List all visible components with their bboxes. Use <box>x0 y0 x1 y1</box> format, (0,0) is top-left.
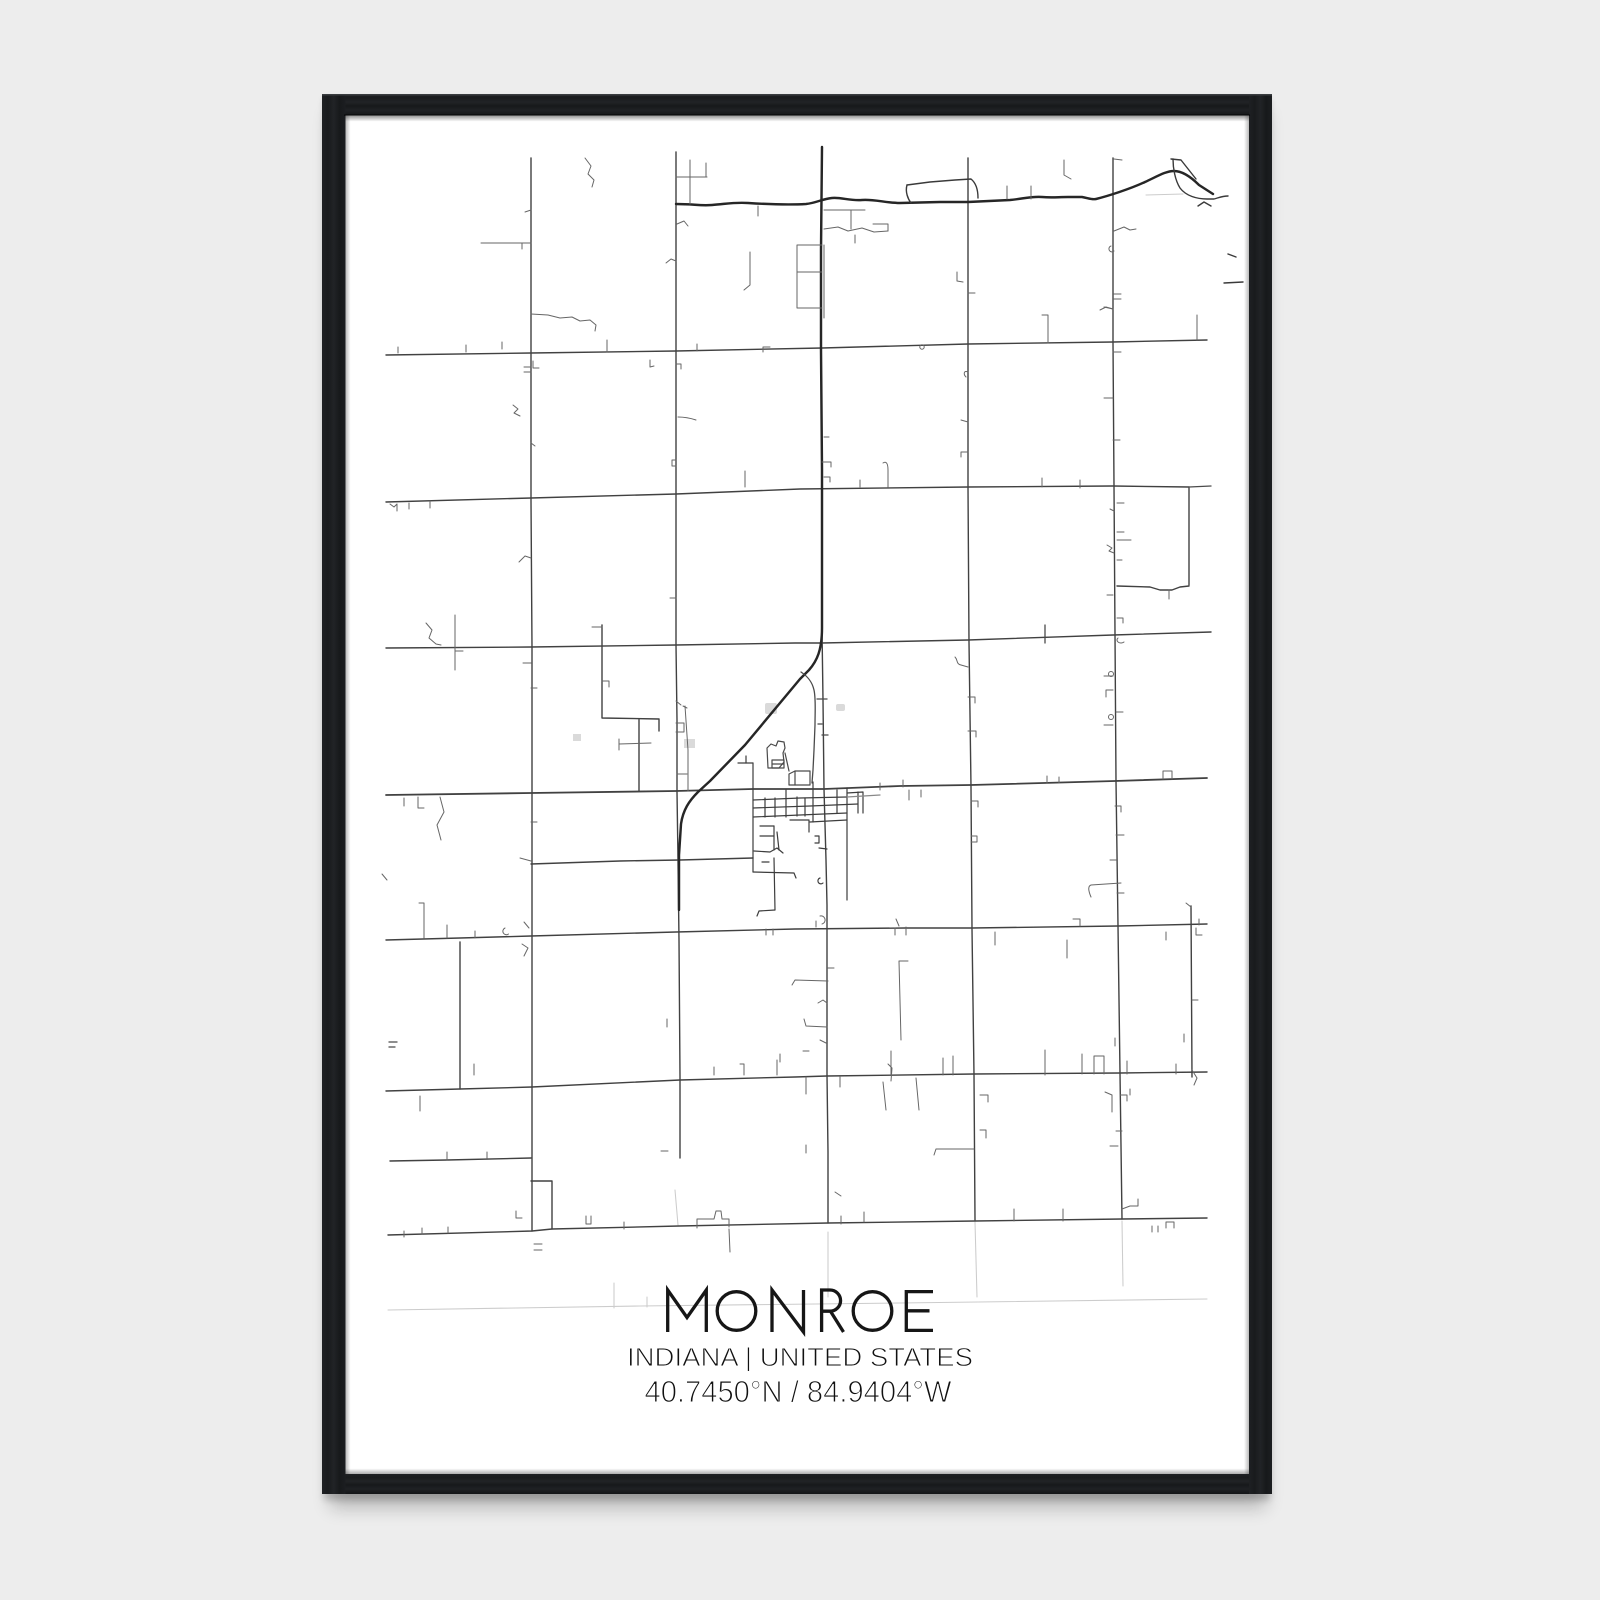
svg-text:40.7450°N / 84.9404°W: 40.7450°N / 84.9404°W <box>645 1374 953 1409</box>
svg-text:INDIANA | UNITED STATES: INDIANA | UNITED STATES <box>627 1342 973 1372</box>
